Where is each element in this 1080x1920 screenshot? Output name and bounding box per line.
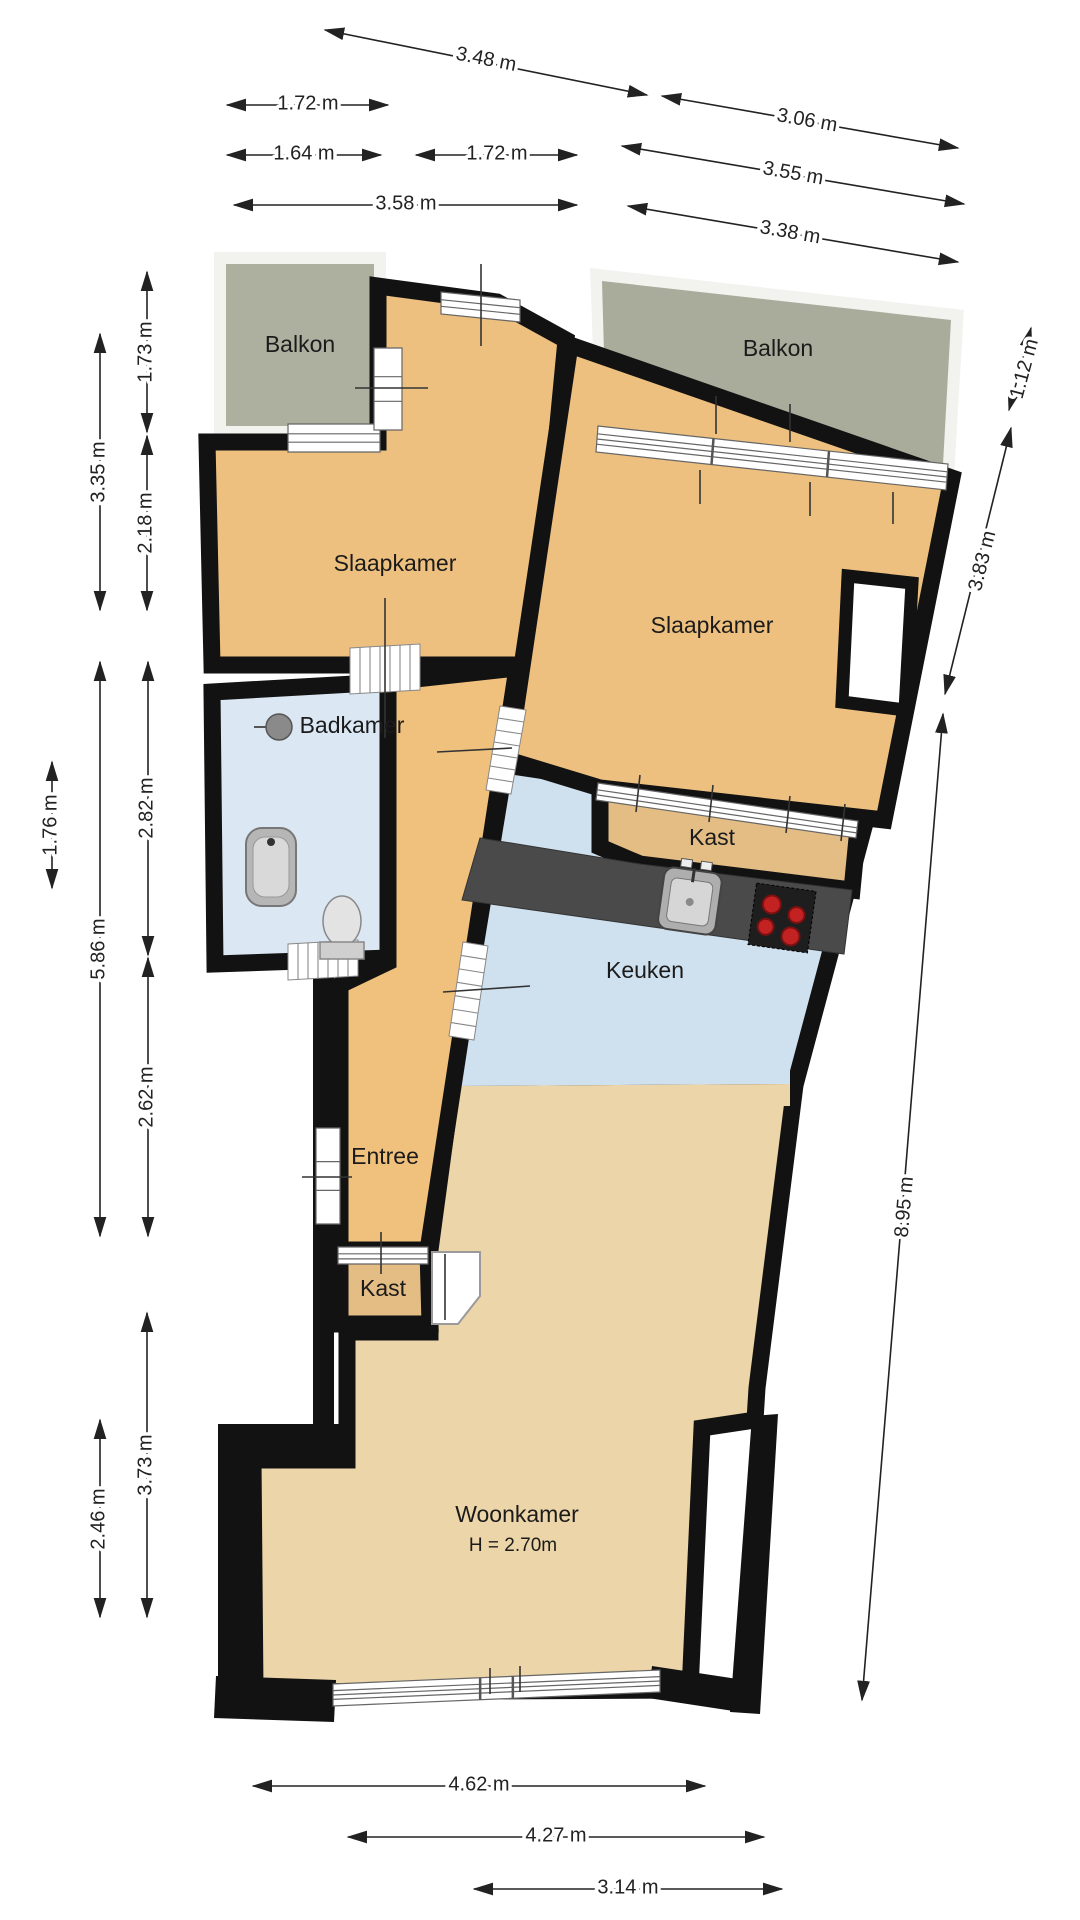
dimension-label: 1.76 m [39,794,61,855]
dimension-218m-10: 2.18 m [134,436,156,610]
dimension-462m-20: 4.62 m [253,1773,705,1795]
dimension-label: 2.18 m [134,492,156,553]
dimension-label: 3.48 m [454,43,518,76]
dimension-335m-9: 3.35 m [87,334,109,610]
dimension-label: 3.58 m [375,192,436,214]
bathtub-icon [246,828,296,906]
wall-step [218,1424,350,1460]
dimension-label: 1.72 m [466,142,527,164]
room-label-kast-boven: Kast [689,824,736,850]
dimension-314m-22: 3.14 m [474,1876,782,1898]
dimension-label: 5.86 m [87,918,109,979]
dimension-358m-4: 3.58 m [234,192,577,214]
sink-tap-right [700,861,712,870]
dimension-label: 1.64 m [273,142,334,164]
niche-right-wall [842,576,912,710]
dimension-label: 1.72 m [277,92,338,114]
dimension-262m-14: 2.62 m [135,958,157,1236]
window-kast-onder-band [338,1247,428,1264]
dimension-label: 3.55 m [761,157,825,189]
floor-plan-canvas: 3.48 m1.72 m1.64 m1.72 m3.58 m3.06 m3.55… [0,0,1080,1920]
room-sublabel-woonkamer: H = 2.70m [469,1535,557,1556]
room-label-slaapkamer-right: Slaapkamer [651,612,774,638]
dimension-282m-11: 2.82 m [135,662,157,955]
dimension-306m-5: 3.06 m [662,96,958,148]
dimension-label: 4.27 m [525,1824,586,1846]
basin-bowl [266,714,292,740]
dimension-label: 2.62 m [135,1066,157,1127]
room-label-entree: Entree [351,1143,419,1169]
dimension-label: 3.14 m [597,1876,658,1898]
dimension-355m-6: 3.55 m [622,146,964,204]
dimension-label: 1.12 m [1006,336,1043,401]
dimension-label: 3.73 m [134,1434,156,1495]
dimension-172m-3: 1.72 m [416,142,577,164]
room-open-boundary-keuken [458,1062,790,1086]
window-glass [288,424,380,452]
dimension-label: 4.62 m [448,1773,509,1795]
stove-burner-2 [788,906,806,924]
dimension-173m-8: 1.73 m [134,272,156,432]
dimension-112m-17: 1.12 m [1006,328,1043,410]
stove-burner-3 [757,918,775,936]
dimension-label: 3.83 m [964,528,1000,593]
dimension-176m-12: 1.76 m [39,762,61,888]
dimension-338m-7: 3.38 m [628,206,958,262]
dimension-172m-1: 1.72 m [227,92,388,114]
window-balkon-left-right [374,348,402,430]
stove-icon [748,883,816,953]
room-label-kast-onder: Kast [360,1275,407,1301]
dimension-label: 2.82 m [135,777,157,838]
dimension-164m-2: 1.64 m [227,142,381,164]
window-balkon-left-bottom [288,424,380,452]
dimension-586m-13: 5.86 m [87,662,109,1236]
dimension-373m-15: 3.73 m [134,1313,156,1617]
dimension-label: 8.95 m [891,1176,918,1239]
room-label-woonkamer: Woonkamer [455,1501,579,1527]
window-glass [338,1247,428,1264]
wall-left-lower [218,1460,256,1692]
dimension-label: 2.46 m [87,1488,109,1549]
toilet-bowl [323,896,361,946]
toilet-icon [320,896,364,959]
room-label-slaapkamer-left: Slaapkamer [334,550,457,576]
dimension-895m-19: 8.95 m [862,714,943,1700]
dimension-246m-16: 2.46 m [87,1420,109,1617]
wall-notch-right [730,1414,778,1714]
room-label-balkon-right: Balkon [743,335,813,361]
room-open-boundary-woonkamer [458,1084,790,1108]
room-label-keuken: Keuken [606,957,684,983]
dimension-label: 3.35 m [87,441,109,502]
dimension-383m-18: 3.83 m [945,428,1011,694]
sink-faucet [693,868,695,882]
window-glass [316,1128,340,1224]
bathtub-drain [267,838,275,846]
room-label-balkon-left: Balkon [265,331,335,357]
stove-top [748,883,816,953]
floor-plan-page: 3.48 m1.72 m1.64 m1.72 m3.58 m3.06 m3.55… [0,0,1080,1920]
window-glass [374,348,402,430]
dimension-348m-0: 3.48 m [325,30,647,95]
dimension-label: 1.73 m [134,321,156,382]
dimension-427m-21: 4.27 m [348,1824,764,1846]
sink-tap-left [681,858,693,867]
dimension-label: 3.06 m [775,104,839,136]
window-entree-left [316,1128,340,1224]
toilet-tank [320,942,364,959]
dimension-label: 3.38 m [758,216,822,248]
wall-corner-bottom-right [648,1666,744,1712]
room-label-badkamer: Badkamer [300,712,405,738]
